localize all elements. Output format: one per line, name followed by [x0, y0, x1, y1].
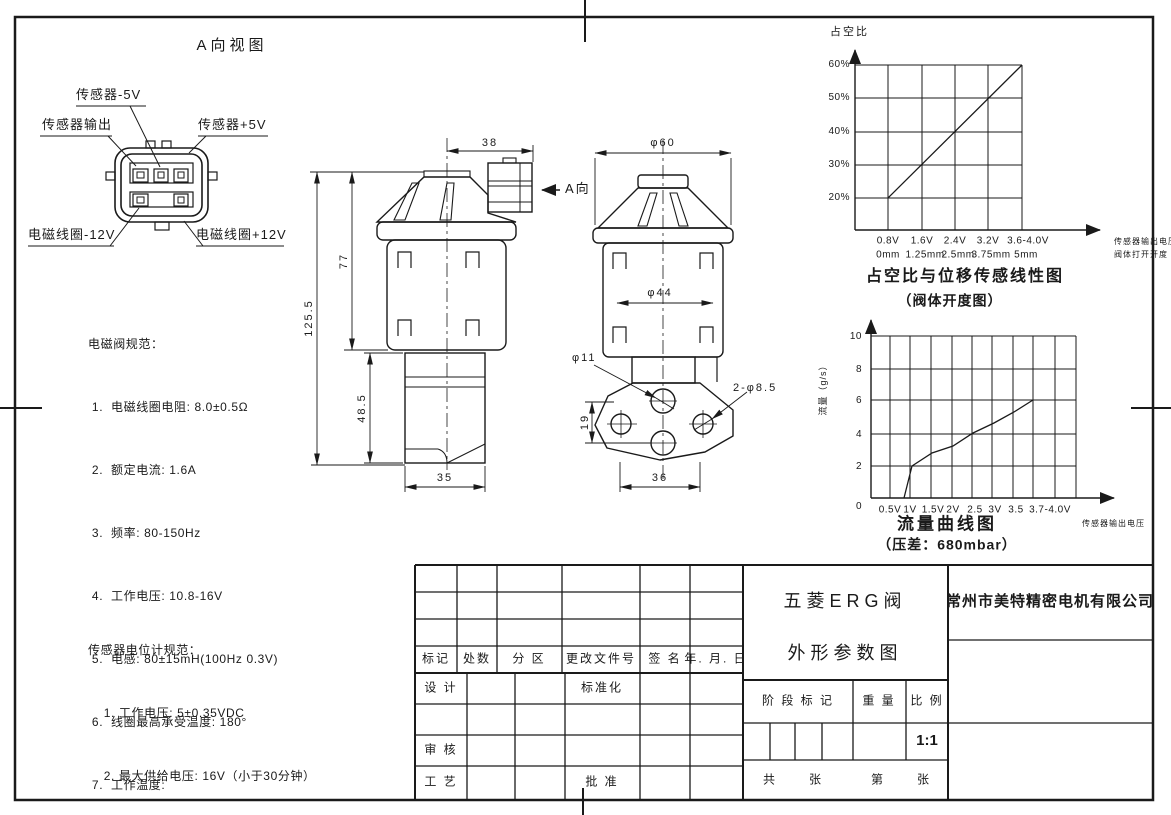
revision-col-zone: 分 区 [512, 652, 545, 665]
company-name: 常州市美特精密电机有限公司 [946, 594, 1154, 611]
duty-chart-xlabel-1: 传感器输出电压 [1114, 238, 1171, 247]
ytick: 60% [824, 59, 850, 70]
duty-chart-xlabel-2: 阀体打开开度 [1114, 251, 1168, 260]
revision-col-docno: 更改文件号 [566, 652, 636, 665]
weight-label: 重 量 [862, 694, 895, 707]
xtick: 3.7-4.0V [1029, 505, 1071, 516]
dim-48-5: 48.5 [356, 393, 368, 422]
scale-value: 1:1 [916, 733, 938, 750]
origin-tick: 0 [856, 501, 862, 512]
valve-side-view [377, 138, 532, 470]
sheet-number: 第 张 [871, 773, 931, 786]
dim-36: 36 [652, 472, 668, 484]
role-approve: 批 准 [585, 775, 618, 788]
sheet-total: 共 张 [763, 773, 823, 786]
ytick: 50% [824, 92, 850, 103]
ytick: 40% [824, 126, 850, 137]
revision-col-date: 年. 月. 日 [684, 652, 747, 665]
xtick-voltage: 1.6V [911, 236, 934, 247]
valve-front-view [593, 140, 733, 480]
scale-label: 比 例 [910, 694, 943, 707]
xtick-voltage: 3.2V [977, 236, 1000, 247]
flow-curve-line [904, 400, 1033, 498]
xtick-voltage: 0.8V [877, 236, 900, 247]
pin-label-sensor-minus-5v: 传感器-5V [76, 88, 141, 102]
dim-d44: φ44 [647, 287, 672, 299]
sensor-potentiometer-specs: 传感器电位计规范： 1. 工作电压: 5±0.35VDC 2. 最大供给电压: … [88, 598, 329, 815]
duty-chart-subtitle: （阀体开度图） [898, 293, 1003, 308]
ytick: 6 [842, 395, 862, 406]
ytick: 8 [842, 364, 862, 375]
stage-mark-label: 阶 段 标 记 [762, 694, 834, 707]
revision-col-sign: 签 名 [648, 652, 681, 665]
dim-125-5: 125.5 [303, 299, 315, 337]
xtick-voltage: 2.4V [944, 236, 967, 247]
spec-line: 传感器电位计规范： [88, 640, 329, 661]
xtick-stroke: 0mm [876, 250, 900, 261]
role-process: 工 艺 [424, 775, 457, 788]
engineering-drawing-page: A向视图 传感器-5V 传感器输出 传感器+5V 电磁线圈-12V 电磁线圈+1… [0, 0, 1171, 815]
spec-line: 2. 额定电流: 1.6A [88, 460, 357, 481]
flow-chart-ylabel: 流量（g/s） [819, 360, 829, 415]
spec-line: 2. 最大供给电压: 16V（小于30分钟） [88, 766, 329, 787]
spec-line: 1. 工作电压: 5±0.35VDC [88, 703, 329, 724]
ytick: 20% [824, 192, 850, 203]
xtick: 3.5 [1008, 505, 1023, 516]
xtick-stroke: 1.25mm [905, 250, 944, 261]
flow-chart-xlabel: 传感器输出电压 [1082, 520, 1145, 529]
ytick: 10 [842, 331, 862, 342]
flow-curve-chart [871, 320, 1114, 498]
connector-view-title: A向视图 [196, 38, 267, 55]
ytick: 2 [842, 461, 862, 472]
dim-19: 19 [579, 414, 591, 430]
pin-label-sensor-output: 传感器输出 [42, 118, 112, 132]
connector-view-drawing [106, 141, 217, 230]
duty-cycle-chart [855, 50, 1100, 230]
spec-line: 1. 电磁线圈电阻: 8.0±0.5Ω [88, 397, 357, 418]
dim-35: 35 [437, 472, 453, 484]
revision-col-mark: 标记 [422, 652, 450, 665]
product-title-line1: 五菱ERG阀 [783, 592, 906, 612]
role-standardize: 标准化 [581, 681, 623, 694]
flow-chart-subtitle: （压差：680mbar） [877, 537, 1017, 552]
view-a-label: A向 [565, 182, 591, 196]
role-check: 审 核 [424, 743, 457, 756]
dim-2-d8-5: 2-φ8.5 [733, 382, 777, 394]
pin-label-coil-plus-12v: 电磁线圈+12V [196, 228, 287, 242]
dim-d11: φ11 [572, 352, 597, 364]
xtick-stroke: 5mm [1014, 250, 1038, 261]
duty-chart-title: 占空比与位移传感线性图 [866, 268, 1064, 286]
pin-label-coil-minus-12v: 电磁线圈-12V [28, 228, 115, 242]
xtick-stroke: 2.5mm [941, 250, 974, 261]
dim-77: 77 [338, 253, 350, 269]
dim-38: 38 [482, 137, 498, 149]
ytick: 4 [842, 429, 862, 440]
xtick-stroke: 3.75mm [971, 250, 1010, 261]
pin-label-sensor-plus-5v: 传感器+5V [198, 118, 267, 132]
dim-d60: φ60 [650, 137, 675, 149]
spec-line: 电磁阀规范： [88, 334, 357, 355]
ytick: 30% [824, 159, 850, 170]
spec-line: 3. 频率: 80-150Hz [88, 523, 357, 544]
product-title-line2: 外形参数图 [788, 644, 903, 664]
role-design: 设 计 [424, 681, 457, 694]
xtick-voltage: 3.6-4.0V [1007, 236, 1049, 247]
duty-chart-ylabel: 占空比 [830, 26, 869, 38]
flow-chart-title: 流量曲线图 [897, 516, 997, 535]
revision-col-count: 处数 [463, 652, 491, 665]
